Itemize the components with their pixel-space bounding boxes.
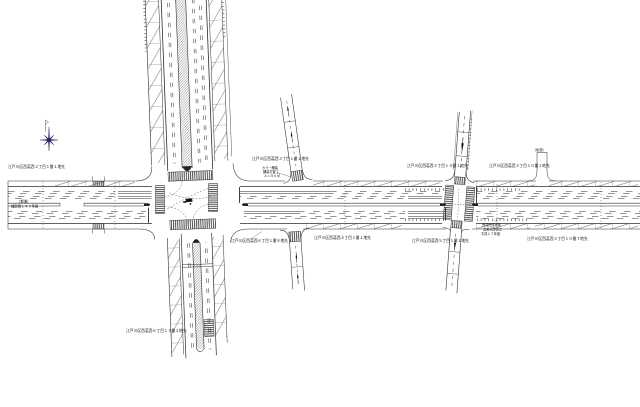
parking-bays-lower-right <box>212 237 227 337</box>
intersection-guide-lines <box>158 176 212 224</box>
median-line <box>8 203 640 206</box>
label-addr-s: 江戸川区西葛西６丁目１３番２地先 <box>126 328 187 333</box>
crosswalk-branch-south <box>289 231 301 242</box>
crosswalk-branch-north <box>291 170 303 181</box>
north-star-icon <box>40 127 58 151</box>
side-stub-south <box>93 224 105 234</box>
median-noses <box>144 203 478 206</box>
crosswalk-2nd-west <box>443 185 454 220</box>
lane-lines-dashed <box>8 192 640 219</box>
lane-lines-solid <box>118 192 444 219</box>
label-addr-e2: 江戸川区西葛西３丁目１０番１地先 <box>489 163 550 168</box>
label-addr-s-branch: 江戸川区西葛西４丁目１番１地先 <box>314 235 371 240</box>
label-addr-w2: 江戸川区西葛西２丁目１４番１地先 <box>407 163 468 168</box>
north-arrow <box>40 120 58 151</box>
drawing-area: 江戸川区西葛西２丁目１番１地先（都道）補助第１４３号線江戸川区西葛西３丁目１番１… <box>0 0 640 407</box>
side-stub-north <box>93 177 105 187</box>
crosswalk-2nd-north <box>454 177 465 185</box>
label-addr-nw: 江戸川区西葛西２丁目１番１地先 <box>8 164 65 169</box>
crosswalk-main-north <box>168 170 213 181</box>
survey-dotted-lines <box>43 182 601 228</box>
main-road-vertical <box>144 0 239 359</box>
intersection-center-symbol <box>183 198 192 205</box>
edge-bays <box>55 181 638 229</box>
crosswalk-main-south <box>170 219 216 230</box>
crosswalk-2nd-south <box>451 220 462 228</box>
label-addr-se: 江戸川区西葛西３丁目１０番７地先 <box>527 236 588 241</box>
crosswalk-south-minor <box>204 319 214 336</box>
crosswalk-main-west <box>156 186 165 214</box>
crosswalk-main-east <box>209 184 218 212</box>
label-note-3: Ａ＝８０㎡ <box>264 173 281 178</box>
label-road-name-2: 補助第１４３号線 <box>11 204 39 209</box>
label-note2-1: 西葛西交番前 <box>482 222 502 227</box>
label-road-name-1: （都道） <box>17 199 31 204</box>
label-addr-sw: 江戸川区西葛西６丁目１番８地先 <box>231 238 288 243</box>
median-island-upper <box>175 0 192 168</box>
label-note2-3: 平成１７年度 <box>481 231 501 236</box>
site-plan-svg: 江戸川区西葛西２丁目１番１地先（都道）補助第１４３号線江戸川区西葛西３丁目１番１… <box>0 0 640 407</box>
label-private-road: （私道） <box>533 147 546 152</box>
label-addr-s2: 江戸川区西葛西５丁目１番１地先 <box>412 238 469 243</box>
label-note2-2: 交差点改良工 <box>483 227 503 232</box>
label-addr-n-branch: 江戸川区西葛西３丁目１番１地先 <box>252 156 309 161</box>
